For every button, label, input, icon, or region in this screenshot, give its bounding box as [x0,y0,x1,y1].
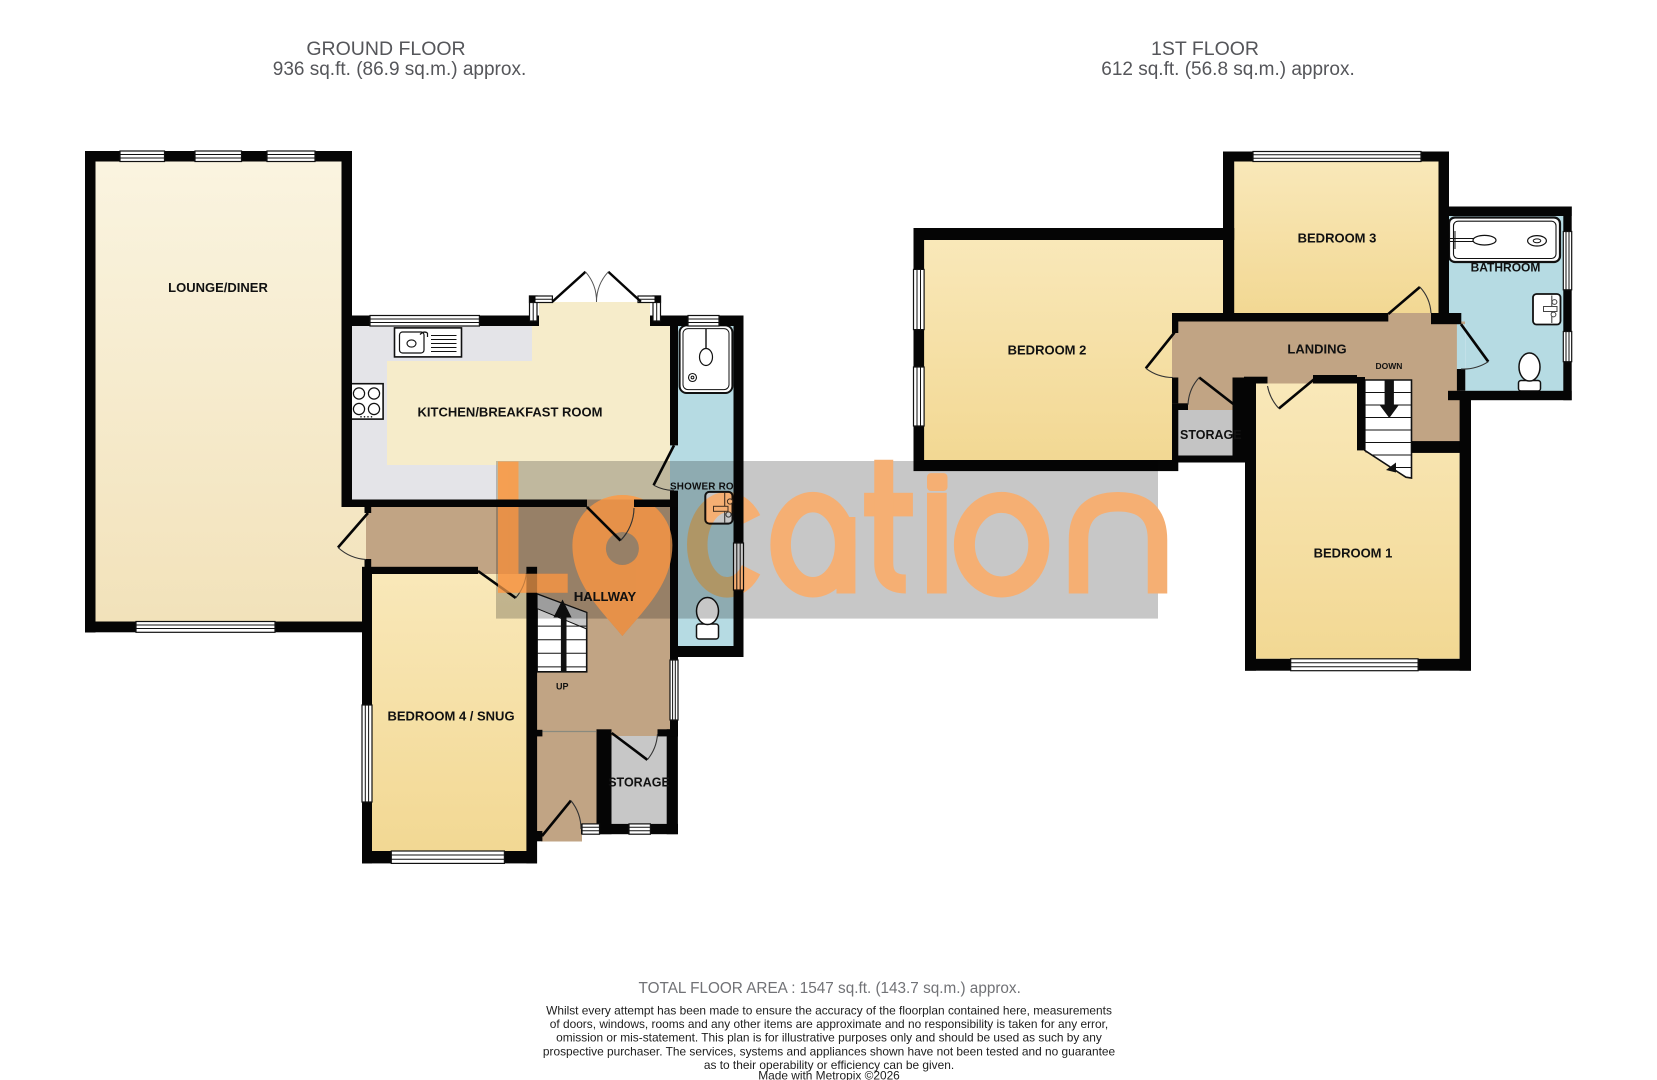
svg-text:STORAGE: STORAGE [1180,428,1242,442]
svg-text:BEDROOM 4 / SNUG: BEDROOM 4 / SNUG [387,709,514,724]
svg-text:HALLWAY: HALLWAY [574,589,637,604]
svg-text:612 sq.ft. (56.8 sq.m.) approx: 612 sq.ft. (56.8 sq.m.) approx. [1101,59,1354,80]
svg-text:Whilst every attempt has been: Whilst every attempt has been made to en… [546,1004,1112,1018]
svg-text:UP: UP [556,682,569,692]
svg-text:STORAGE: STORAGE [608,776,670,790]
svg-text:BATHROOM: BATHROOM [1471,261,1541,275]
svg-text:BEDROOM 1: BEDROOM 1 [1314,546,1393,561]
svg-text:936 sq.ft. (86.9 sq.m.) approx: 936 sq.ft. (86.9 sq.m.) approx. [273,59,526,80]
svg-text:BEDROOM 3: BEDROOM 3 [1298,231,1377,246]
svg-text:prospective purchaser. The ser: prospective purchaser. The services, sys… [543,1044,1116,1058]
svg-text:BEDROOM 2: BEDROOM 2 [1008,343,1087,358]
svg-text:TOTAL FLOOR AREA : 1547 sq.ft.: TOTAL FLOOR AREA : 1547 sq.ft. (143.7 sq… [639,980,1021,997]
svg-text:1ST FLOOR: 1ST FLOOR [1151,38,1259,60]
svg-text:of doors, windows, rooms and a: of doors, windows, rooms and any other i… [550,1017,1108,1031]
svg-text:DOWN: DOWN [1376,361,1403,371]
svg-text:LOUNGE/DINER: LOUNGE/DINER [168,280,268,295]
svg-text:KITCHEN/BREAKFAST ROOM: KITCHEN/BREAKFAST ROOM [418,405,603,420]
svg-text:GROUND FLOOR: GROUND FLOOR [306,38,465,60]
svg-text:Made with Metropix ©2026: Made with Metropix ©2026 [758,1068,900,1080]
svg-text:omission or mis-statement. Thi: omission or mis-statement. This plan is … [556,1031,1102,1045]
svg-text:LANDING: LANDING [1287,342,1346,357]
